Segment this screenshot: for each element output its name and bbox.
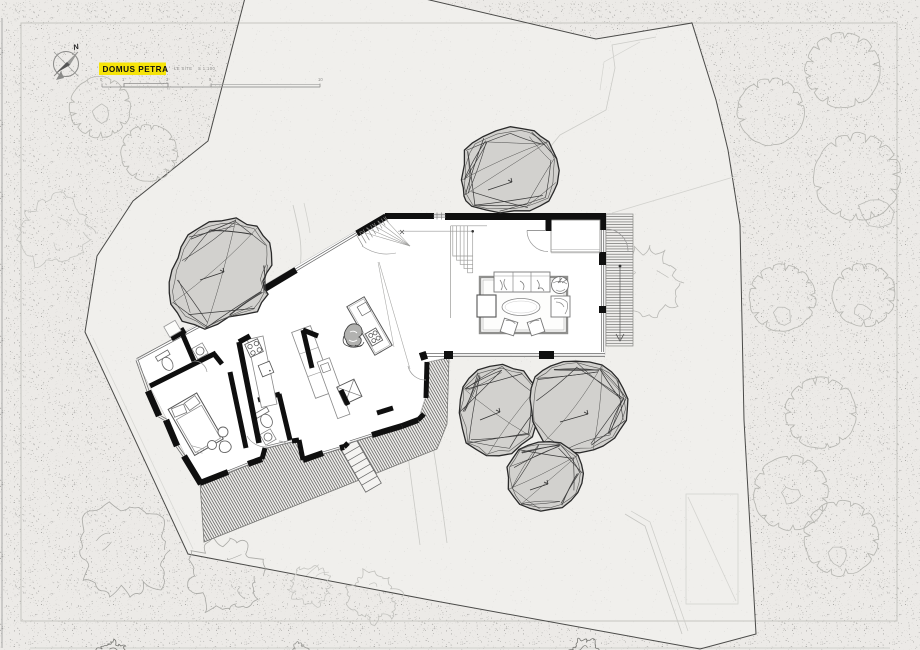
svg-text:LE SITE: LE SITE (174, 66, 192, 71)
svg-text:DOMUS PETRA: DOMUS PETRA (103, 65, 169, 74)
svg-text:S 1:100: S 1:100 (198, 66, 216, 71)
svg-text:10: 10 (318, 77, 323, 82)
